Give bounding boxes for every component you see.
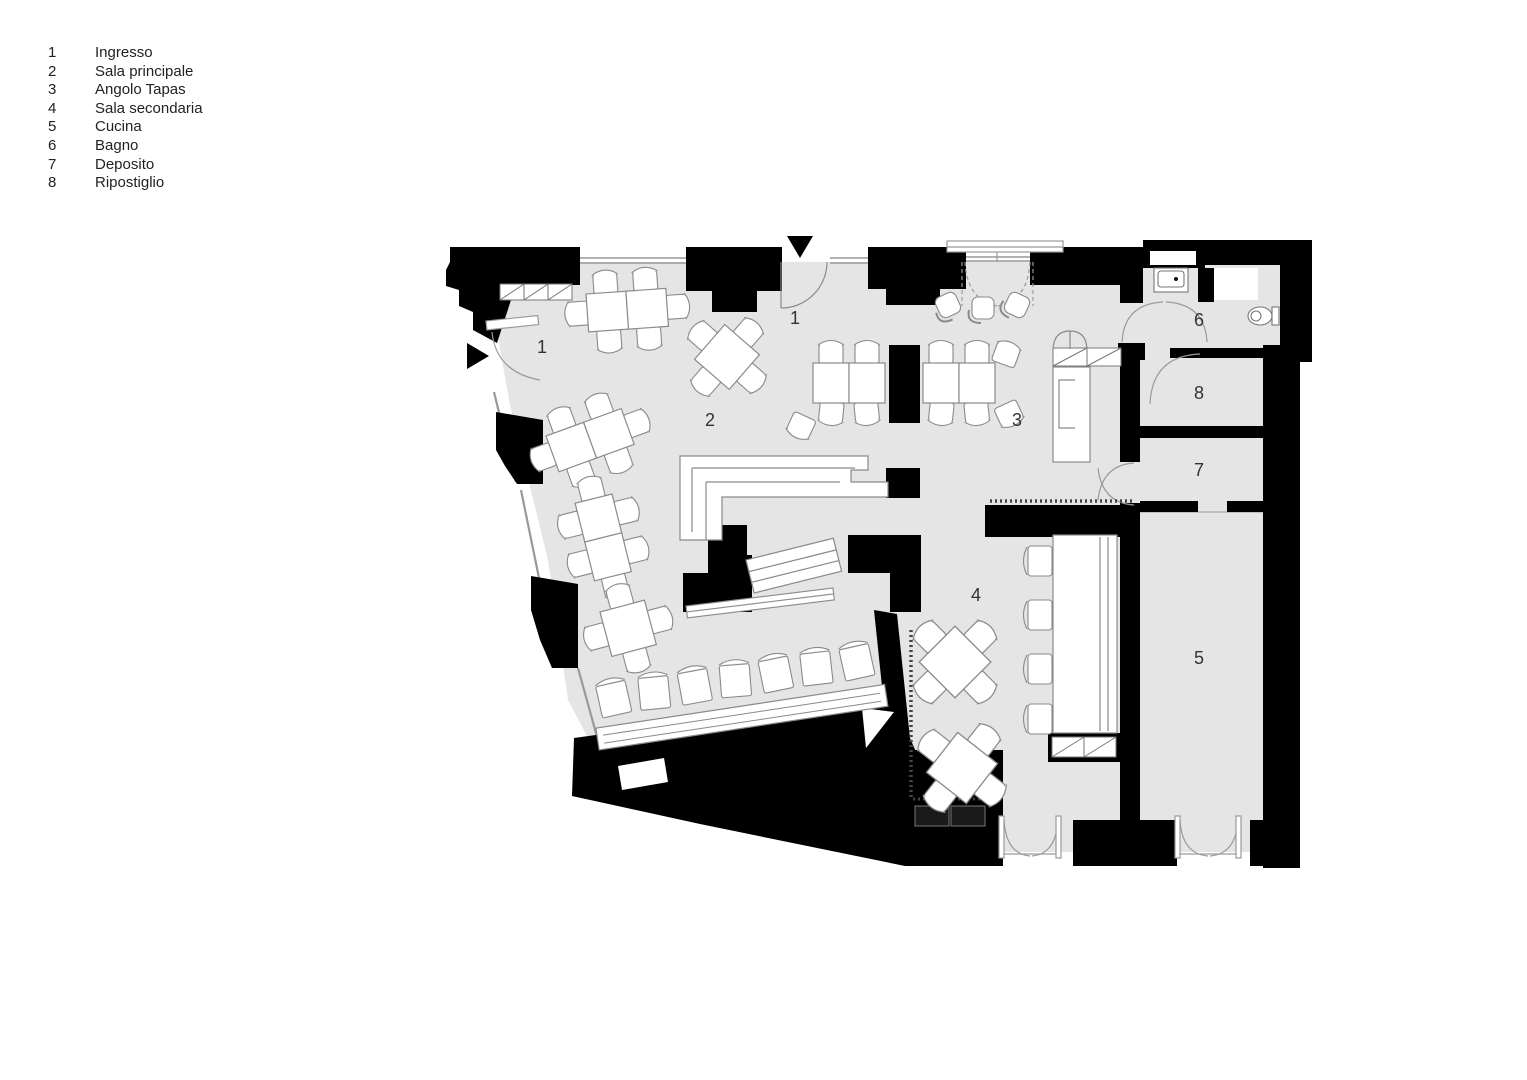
entrance-arrow-left-icon [467,343,489,369]
room-label-ripostiglio: 8 [1194,383,1204,403]
room-label-angolo-tapas: 3 [1012,410,1022,430]
entrance-arrow-top-icon [787,236,813,258]
room-label-bagno: 6 [1194,310,1204,330]
floor-plan-page: 1Ingresso 2Sala principale 3Angolo Tapas… [0,0,1527,1080]
room-label-cucina: 5 [1194,648,1204,668]
room-label-ingresso-top: 1 [790,308,800,328]
room-label-ingresso-left: 1 [537,337,547,357]
room-label-sala-secondaria: 4 [971,585,981,605]
room-label-sala-principale: 2 [705,410,715,430]
floor-plan-svg: 1 1 2 3 4 5 6 7 8 [0,0,1527,1080]
toilet [1248,307,1279,325]
long-table [1053,535,1117,733]
sink [1154,268,1188,292]
room-label-deposito: 7 [1194,460,1204,480]
